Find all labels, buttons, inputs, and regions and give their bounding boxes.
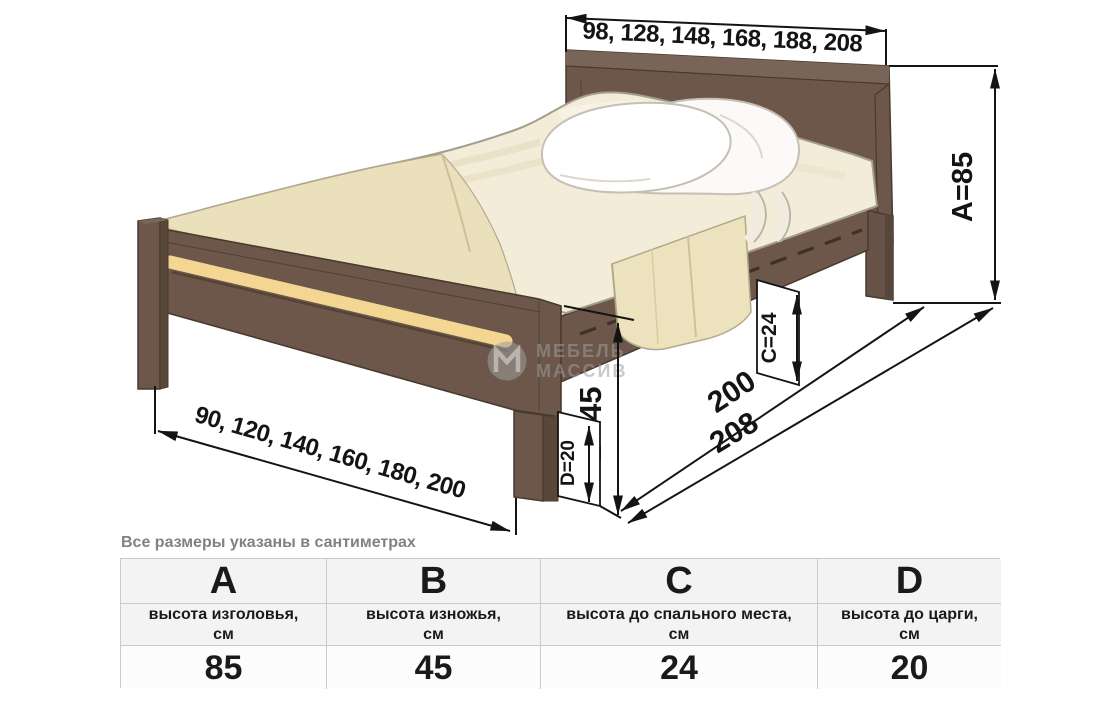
watermark: МЕБЕЛЬ МАССИВ [488, 341, 628, 381]
desc-unit: см [669, 625, 690, 645]
table-header-d: D [818, 559, 1001, 604]
desc-unit: см [213, 625, 234, 645]
desc-unit: см [899, 625, 920, 645]
desc-text: высота до спального места, [566, 605, 792, 625]
dim-a [889, 66, 1001, 303]
watermark-line2: МАССИВ [536, 361, 627, 381]
dim-length-200-label: 200 [702, 365, 762, 420]
table-header-c: C [541, 559, 818, 604]
bed-diagram-svg: МЕБЕЛЬ МАССИВ 98, 128, 148, 168, 188, 20… [0, 0, 1120, 560]
table-value-a: 85 [121, 646, 327, 689]
dim-a-label: A=85 [947, 152, 979, 222]
footboard-leg [514, 411, 558, 501]
dim-length-208-label: 208 [704, 406, 764, 460]
dim-headboard-widths-label: 98, 128, 148, 168, 188, 208 [582, 17, 863, 57]
desc-text: высота изножья, [366, 605, 501, 625]
table-desc-b: высота изножья, см [327, 604, 541, 646]
desc-text: высота до царги, [841, 605, 978, 625]
dim-c-label: C=24 [758, 312, 781, 363]
desc-unit: см [423, 625, 444, 645]
table-header-a: A [121, 559, 327, 604]
desc-text: высота изголовья, [149, 605, 299, 625]
table-desc-c: высота до спального места, см [541, 604, 818, 646]
dim-d-label: D=20 [558, 440, 579, 486]
units-caption: Все размеры указаны в сантиметрах [121, 534, 416, 552]
bed-dimension-diagram: МЕБЕЛЬ МАССИВ 98, 128, 148, 168, 188, 20… [0, 0, 1120, 560]
watermark-line1: МЕБЕЛЬ [536, 341, 626, 361]
table-value-d: 20 [818, 646, 1001, 689]
table-header-b: B [327, 559, 541, 604]
front-left-leg [138, 218, 168, 389]
table-value-b: 45 [327, 646, 541, 689]
table-desc-a: высота изголовья, см [121, 604, 327, 646]
page: МЕБЕЛЬ МАССИВ 98, 128, 148, 168, 188, 20… [0, 0, 1120, 717]
table-desc-d: высота до царги, см [818, 604, 1001, 646]
table-value-c: 24 [541, 646, 818, 689]
dimensions-table: A B C D высота изголовья, см высота изно… [120, 558, 1000, 688]
headboard-leg [866, 210, 893, 300]
